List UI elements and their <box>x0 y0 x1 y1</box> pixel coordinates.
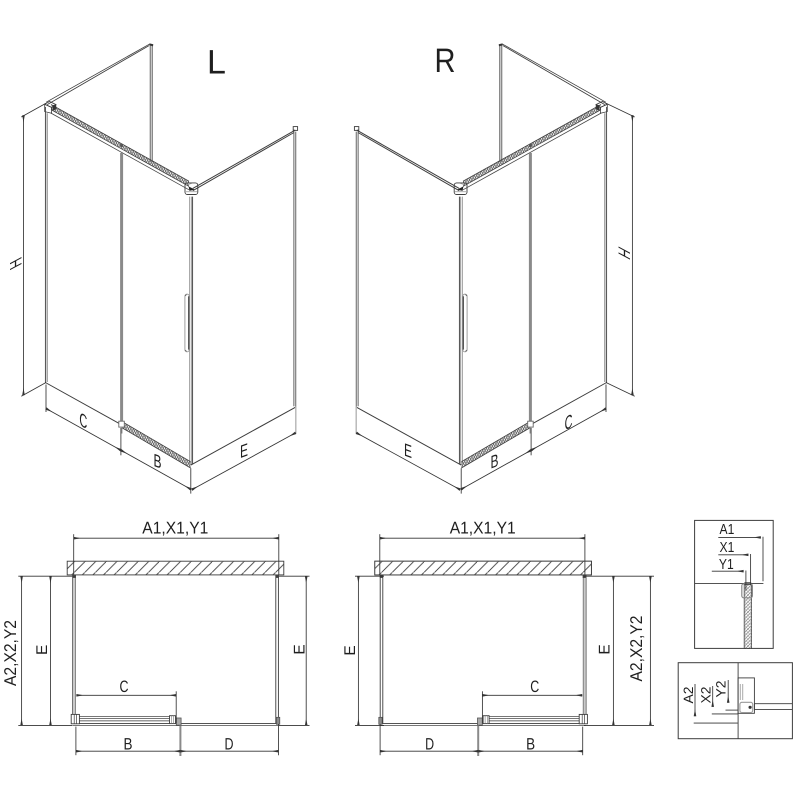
svg-text:C: C <box>79 409 87 434</box>
svg-text:B: B <box>526 735 535 753</box>
svg-text:A2: A2 <box>681 687 696 704</box>
svg-text:C: C <box>565 410 573 435</box>
svg-text:Y1: Y1 <box>719 557 734 573</box>
svg-text:A1: A1 <box>720 522 735 538</box>
svg-text:A2,X2,Y2: A2,X2,Y2 <box>1 620 20 686</box>
svg-text:D: D <box>225 735 234 753</box>
svg-text:B: B <box>491 450 499 473</box>
svg-text:D: D <box>425 735 434 753</box>
svg-text:A2,X2,Y2: A2,X2,Y2 <box>627 616 646 682</box>
svg-text:E: E <box>240 439 248 462</box>
svg-text:E: E <box>404 439 412 462</box>
svg-text:C: C <box>120 678 129 696</box>
svg-text:E: E <box>34 645 51 655</box>
svg-text:A1,X1,Y1: A1,X1,Y1 <box>450 518 516 537</box>
svg-text:X2: X2 <box>699 687 714 704</box>
svg-text:C: C <box>530 678 539 696</box>
svg-text:E: E <box>597 644 614 654</box>
svg-text:Y2: Y2 <box>714 681 729 698</box>
svg-text:L: L <box>207 43 226 81</box>
svg-text:A1,X1,Y1: A1,X1,Y1 <box>142 518 208 537</box>
svg-text:B: B <box>124 735 133 753</box>
svg-text:E: E <box>292 644 309 654</box>
svg-text:R: R <box>435 42 456 80</box>
svg-text:X1: X1 <box>720 540 735 556</box>
svg-text:B: B <box>154 450 162 473</box>
svg-text:E: E <box>342 645 359 655</box>
